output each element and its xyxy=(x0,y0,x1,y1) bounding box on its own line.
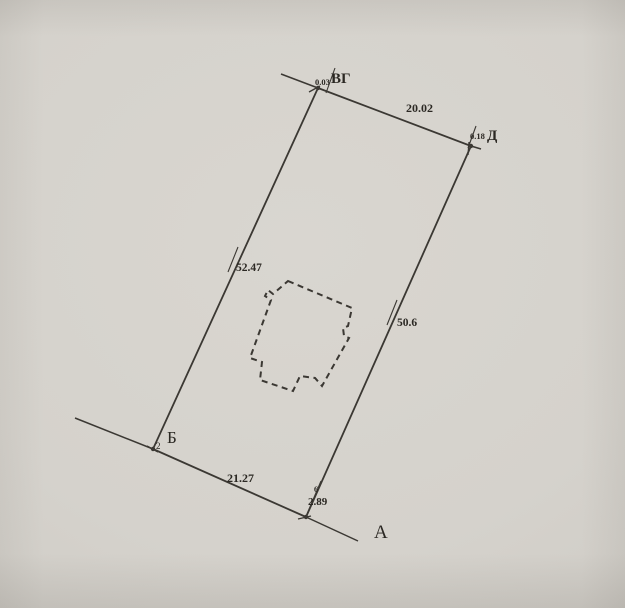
corner-label-vg: ВГ xyxy=(331,71,351,87)
corner-label-a: А xyxy=(374,522,388,543)
boundary-extension-line xyxy=(281,74,318,88)
dim-left-edge: 52.47 xyxy=(236,262,262,274)
corner-label-d: Д xyxy=(487,128,498,144)
boundary-extension-line xyxy=(75,418,153,449)
dim-offset-bottom: 2.89 xyxy=(308,496,328,508)
corner-point-2: 2 xyxy=(156,441,161,451)
boundary-extension-line xyxy=(306,517,358,541)
vertex-tick xyxy=(468,142,469,155)
corner-offset-top: 0.03 xyxy=(315,77,330,87)
parcel-boundary xyxy=(153,88,471,517)
vertex-dot xyxy=(469,144,473,148)
vertex-dot xyxy=(304,515,308,519)
survey-plan-svg: 0.03ВГ20.020.18Д52.4750.6Б221.2762.89А xyxy=(0,0,625,608)
dim-bottom-edge: 21.27 xyxy=(227,471,254,485)
corner-label-b: Б xyxy=(167,428,177,447)
dim-right-edge: 50.6 xyxy=(397,317,417,329)
photo-background: 0.03ВГ20.020.18Д52.4750.6Б221.2762.89А xyxy=(0,0,625,608)
corner-offset-d: 0.18 xyxy=(470,131,485,141)
corner-point-6: 6 xyxy=(314,485,318,494)
building-outline xyxy=(250,281,352,391)
slash-mark xyxy=(387,300,397,325)
dim-top-edge: 20.02 xyxy=(406,101,433,115)
vertex-dot xyxy=(151,447,155,451)
